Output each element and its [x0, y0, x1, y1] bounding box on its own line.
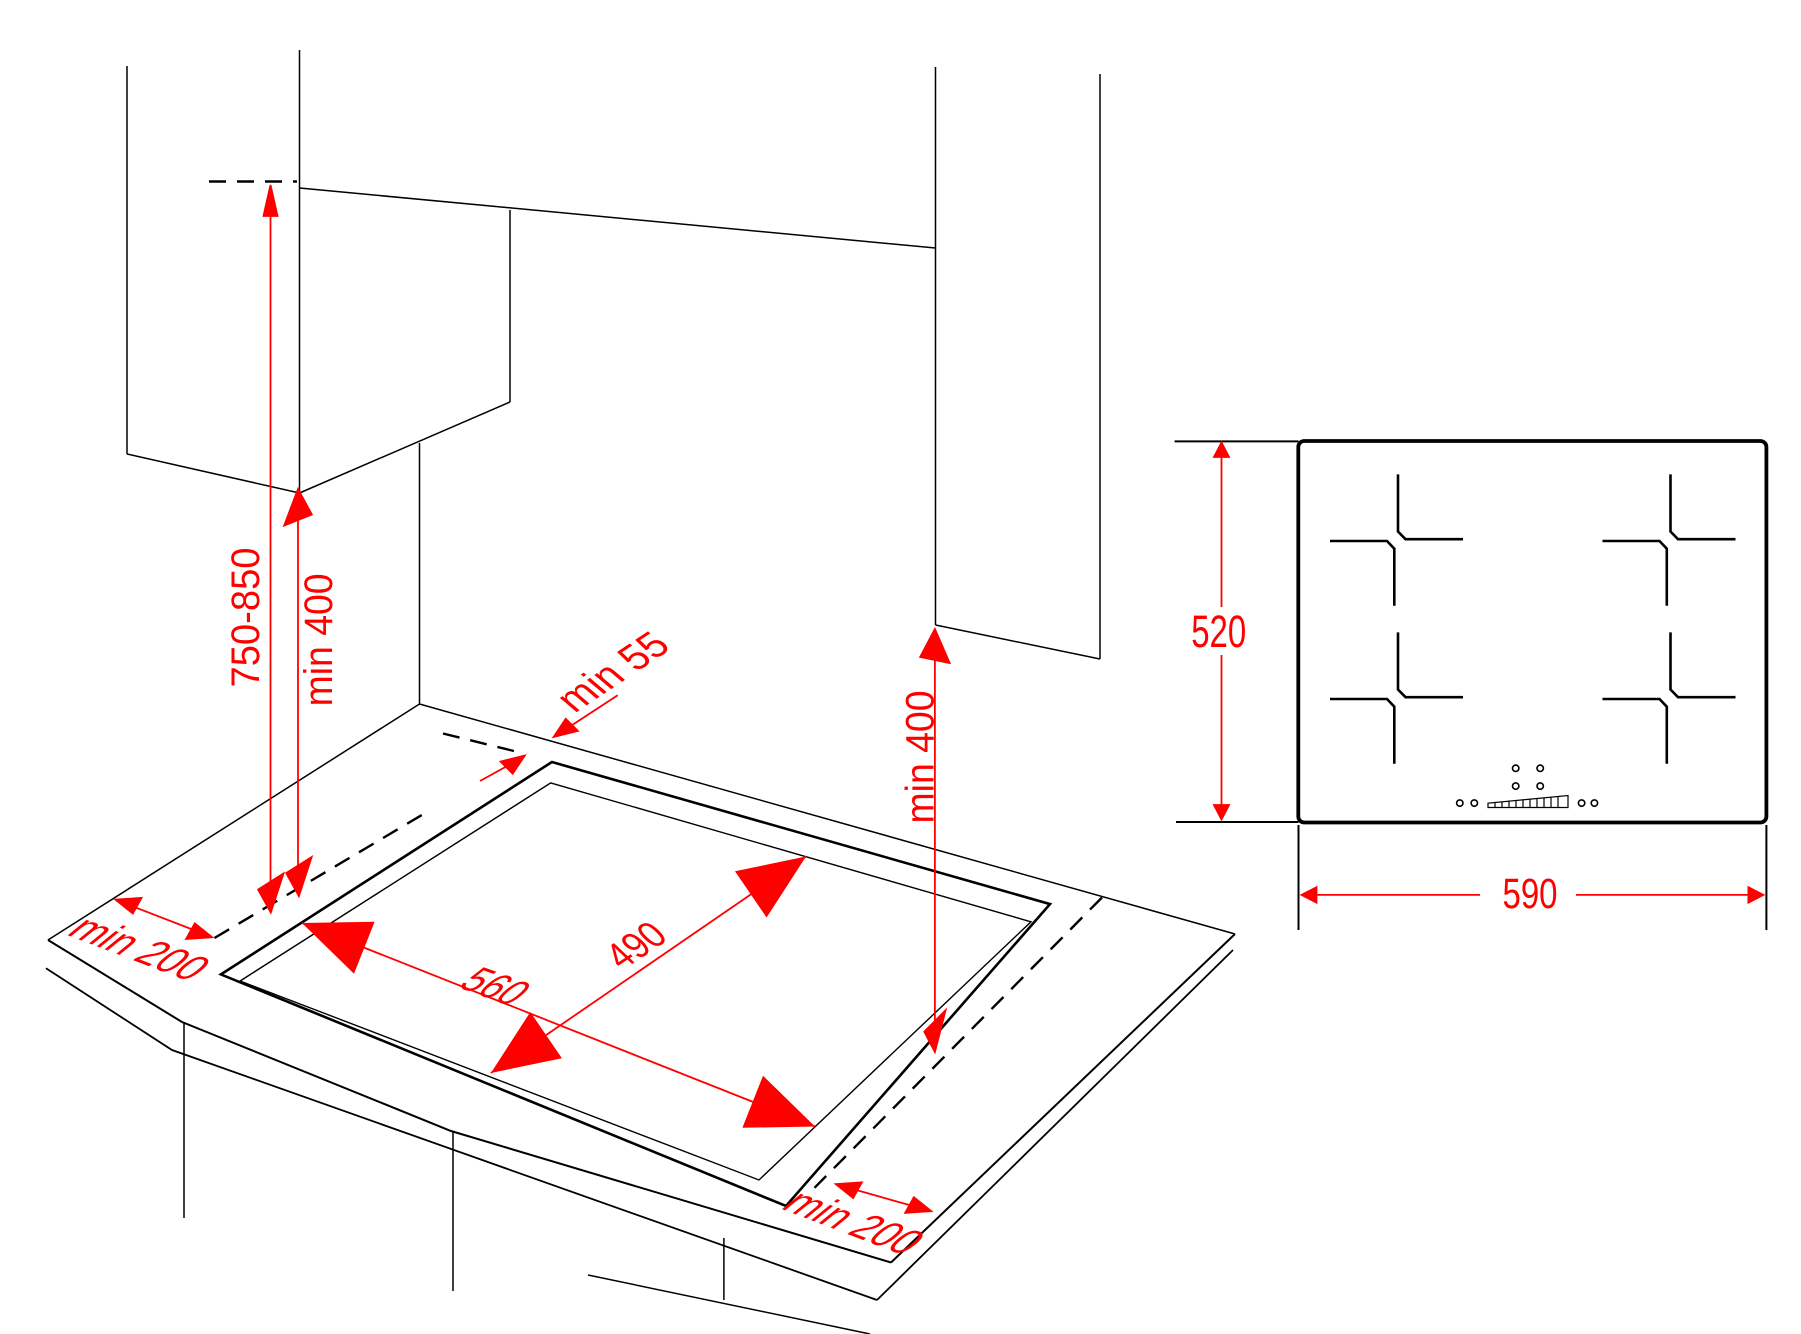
svg-text:750-850: 750-850 — [224, 548, 268, 688]
svg-text:520: 520 — [1191, 606, 1246, 657]
svg-text:590: 590 — [1503, 870, 1558, 918]
svg-text:min 400: min 400 — [899, 691, 943, 824]
svg-text:min 400: min 400 — [297, 573, 341, 706]
